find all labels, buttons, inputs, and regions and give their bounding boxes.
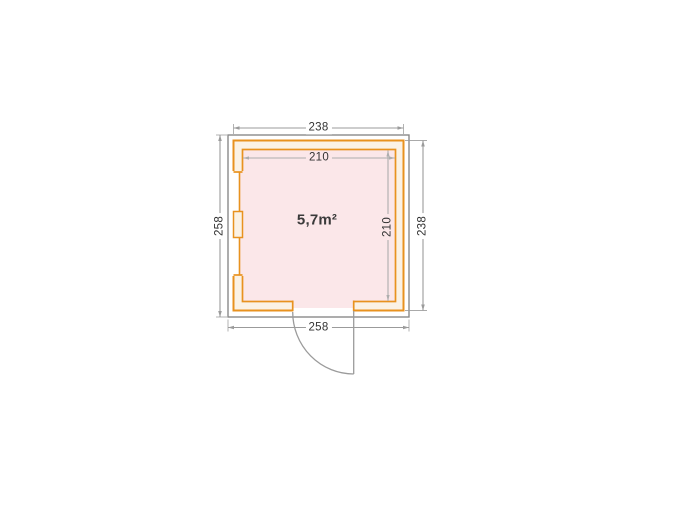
- dimension-label-bottom: 258: [305, 321, 331, 334]
- dimension-label-left: 258: [213, 213, 226, 239]
- floor-plan: 238 258 258 238 210 210 5,7m²: [0, 0, 700, 525]
- area-label: 5,7m²: [297, 212, 337, 229]
- door: [293, 296, 354, 374]
- dimension-label-right: 238: [416, 212, 429, 238]
- window-mullion-block: [234, 212, 243, 238]
- floor-plan-drawing: [0, 0, 700, 525]
- left-wall-window: [232, 171, 246, 276]
- dimension-label-inner-height: 210: [381, 214, 394, 240]
- dimension-label-inner-width: 210: [306, 151, 332, 164]
- dimension-label-top: 238: [305, 121, 331, 134]
